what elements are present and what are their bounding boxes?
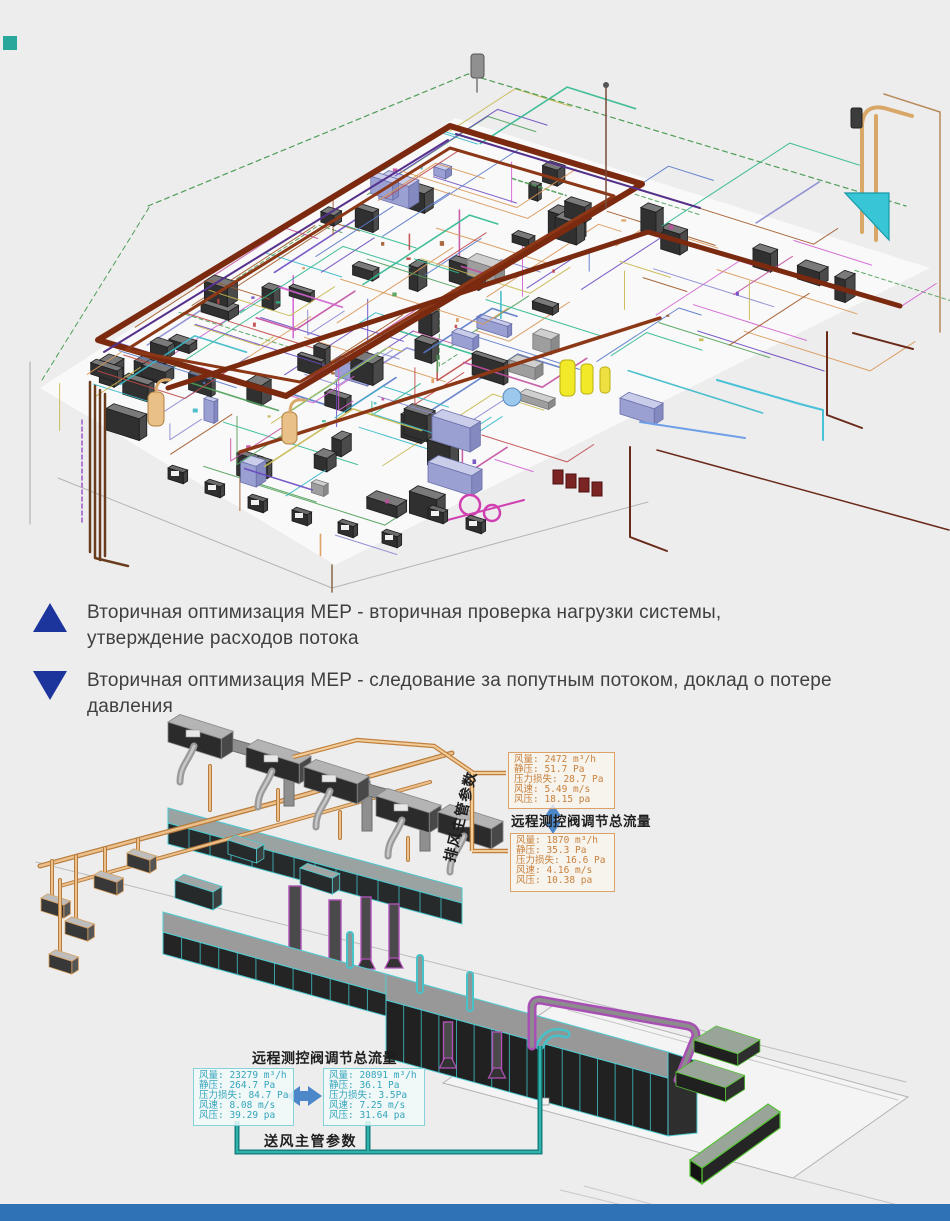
legend-text: Вторичная оптимизация MEP - следование з… — [87, 668, 832, 720]
param-line: 风压: 31.64 pa — [329, 1111, 420, 1121]
param-line: 风压: 39.29 pa — [199, 1111, 289, 1121]
legend-item-pressure-report: Вторичная оптимизация MEP - следование з… — [33, 668, 913, 720]
bottom-accent-bar — [0, 1204, 950, 1221]
supply-duct-label: 送风主管参数 — [264, 1131, 357, 1151]
exhaust-valve-label: 远程测控阀调节总流量 — [511, 810, 651, 830]
supply-param-box-left: 风量: 23279 m³/h静压: 264.7 Pa压力损失: 84.7 Pa风… — [193, 1068, 294, 1126]
top-mep-model-render — [0, 0, 950, 600]
legend-item-secondary-check: Вторичная оптимизация MEP - вторичная пр… — [33, 600, 793, 652]
supply-valve-label: 远程测控阀调节总流量 — [252, 1048, 397, 1068]
exhaust-param-box-bottom: 风量: 1870 m³/h静压: 35.3 Pa压力损失: 16.6 Pa风速:… — [510, 833, 615, 892]
supply-param-box-right: 风量: 20891 m³/h静压: 36.1 Pa压力损失: 3.5Pa风速: … — [323, 1068, 425, 1126]
page-root: { "page": { "background": "#ededed", "bo… — [0, 0, 950, 1221]
param-line: 风压: 18.15 pa — [514, 795, 610, 805]
down-triangle-icon — [33, 671, 67, 700]
up-triangle-icon — [33, 603, 67, 632]
exhaust-param-box-top: 风量: 2472 m³/h静压: 51.7 Pa压力损失: 28.7 Pa风速:… — [508, 752, 615, 809]
param-line: 风压: 10.38 pa — [516, 876, 610, 886]
legend-text: Вторичная оптимизация MEP - вторичная пр… — [87, 600, 721, 652]
